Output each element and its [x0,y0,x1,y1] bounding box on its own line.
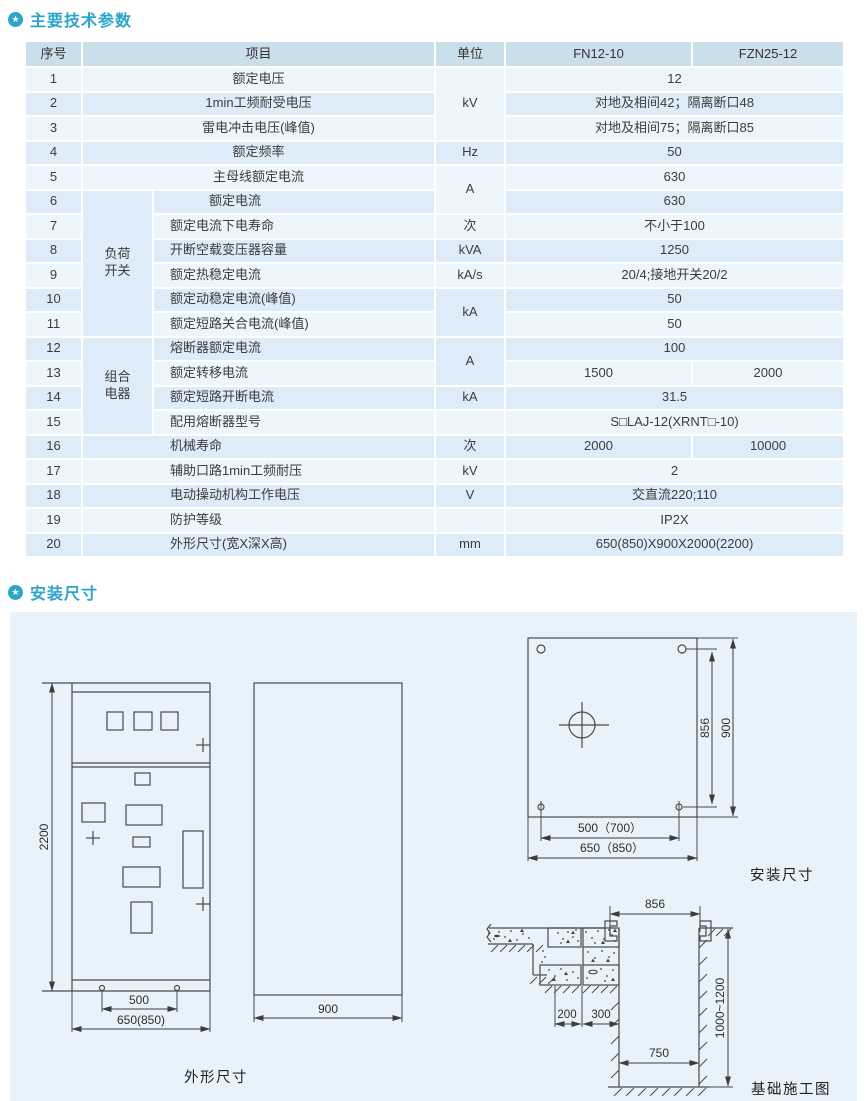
section-title-install: 安装尺寸 [30,580,98,604]
drawings-panel: 2200 500 650(850) 外形尺寸 900 856 900 500（7… [10,612,857,1101]
table-cell: 额定转移电流 [153,361,435,386]
table-cell: 17 [25,459,82,484]
section-title-params: 主要技术参数 [30,7,132,31]
table-cell: 650(850)X900X2000(2200) [505,533,844,558]
header-no: 序号 [25,41,82,67]
table-row: 3雷电冲击电压(峰值)对地及相间75；隔离断口85 [25,116,844,141]
table-cell: A [435,165,505,214]
dim-bottom-width: 750 [649,1046,669,1060]
table-cell: 9 [25,263,82,288]
table-cell: mm [435,533,505,558]
table-cell: 额定电压 [82,67,435,92]
table-cell: 额定频率 [82,141,435,166]
table-cell: 电动操动机构工作电压 [82,484,435,509]
table-cell: 19 [25,508,82,533]
table-cell: 额定动稳定电流(峰值) [153,288,435,313]
table-cell [435,508,505,533]
header-col2: FZN25-12 [692,41,844,67]
table-cell: kA/s [435,263,505,288]
header-item: 项目 [82,41,435,67]
table-cell: 配用熔断器型号 [153,410,435,435]
table-row: 4额定频率Hz50 [25,141,844,166]
table-cell: 31.5 [505,386,844,411]
table-cell: 熔断器额定电流 [153,337,435,362]
channel-steel-right [700,921,711,941]
table-cell: 1min工频耐受电压 [82,92,435,117]
table-cell: kA [435,288,505,337]
table-cell: 3 [25,116,82,141]
table-cell: 2000 [505,435,692,460]
table-cell: 16 [25,435,82,460]
table-row: 5主母线额定电流A630 [25,165,844,190]
table-row: 16机械寿命次200010000 [25,435,844,460]
table-cell: 50 [505,141,844,166]
table-cell: S□LAJ-12(XRNT□-10) [505,410,844,435]
table-cell: 组合 电器 [82,337,153,435]
parameters-table: 序号 项目 单位 FN12-10 FZN25-12 1额定电压kV1221min… [24,40,845,558]
table-cell: 630 [505,190,844,215]
table-cell: 开断空载变压器容量 [153,239,435,264]
dim-200: 200 [557,1009,576,1021]
table-cell: 对地及相间42；隔离断口48 [505,92,844,117]
table-row: 17辅助口路1min工频耐压kV2 [25,459,844,484]
table-row: 6负荷 开关额定电流630 [25,190,844,215]
table-cell: 防护等级 [82,508,435,533]
table-cell: 20 [25,533,82,558]
table-cell: 20/4;接地开关20/2 [505,263,844,288]
table-cell: 次 [435,214,505,239]
dim-width: 650(850) [117,1013,165,1027]
table-cell: 额定短路开断电流 [153,386,435,411]
dim-plan-hole-span: 500（700） [578,821,642,835]
params-table-body: 1额定电压kV1221min工频耐受电压对地及相间42；隔离断口483雷电冲击电… [25,67,844,557]
table-cell: 2 [505,459,844,484]
table-cell: 15 [25,410,82,435]
table-cell: 2000 [692,361,844,386]
table-cell: 7 [25,214,82,239]
table-cell: A [435,337,505,386]
table-header: 序号 项目 单位 FN12-10 FZN25-12 [25,41,844,67]
outline-label: 外形尺寸 [184,1069,248,1086]
section-header-params: ★ 主要技术参数 [8,7,132,31]
table-cell: kA [435,386,505,411]
dim-300: 300 [591,1009,610,1021]
table-row: 12组合 电器熔断器额定电流A100 [25,337,844,362]
dim-plan-width: 650（850） [580,841,644,855]
table-cell: kVA [435,239,505,264]
table-cell: 12 [25,337,82,362]
table-cell: 100 [505,337,844,362]
table-cell: 630 [505,165,844,190]
table-cell: 外形尺寸(宽X深X高) [82,533,435,558]
table-cell: kV [435,459,505,484]
table-cell: 交直流220;110 [505,484,844,509]
table-cell: 10000 [692,435,844,460]
texture-dots [488,929,617,982]
foundation-section: 856 200 300 750 1000~1200 基础施工图 [487,897,831,1098]
outline-front-view: 2200 500 650(850) 外形尺寸 [37,683,248,1086]
dim-foundation-depth: 1000~1200 [713,977,727,1038]
table-cell: 4 [25,141,82,166]
table-cell: 1 [25,67,82,92]
table-cell: 机械寿命 [82,435,435,460]
table-cell: 12 [505,67,844,92]
table-cell: 额定电流 [153,190,435,215]
table-row: 20外形尺寸(宽X深X高)mm650(850)X900X2000(2200) [25,533,844,558]
table-cell: 50 [505,312,844,337]
table-cell: Hz [435,141,505,166]
dim-depth: 900 [318,1002,338,1016]
header-unit: 单位 [435,41,505,67]
table-row: 1额定电压kV12 [25,67,844,92]
table-cell: 18 [25,484,82,509]
foundation-label: 基础施工图 [751,1081,831,1098]
section-header-install: ★ 安装尺寸 [8,580,98,604]
dim-hole-height: 856 [698,718,712,738]
table-cell: 1250 [505,239,844,264]
star-badge-icon: ★ [8,12,23,27]
table-cell [435,410,505,435]
table-cell: IP2X [505,508,844,533]
table-row: 21min工频耐受电压对地及相间42；隔离断口48 [25,92,844,117]
table-row: 18电动操动机构工作电压V交直流220;110 [25,484,844,509]
table-cell: 6 [25,190,82,215]
table-cell: kV [435,67,505,141]
table-cell: 10 [25,288,82,313]
table-cell: V [435,484,505,509]
table-cell: 2 [25,92,82,117]
table-row: 19防护等级IP2X [25,508,844,533]
table-cell: 50 [505,288,844,313]
table-cell: 主母线额定电流 [82,165,435,190]
table-cell: 额定热稳定电流 [153,263,435,288]
table-cell: 负荷 开关 [82,190,153,337]
table-cell: 8 [25,239,82,264]
hatch-lines [491,929,731,1096]
dim-hole-span: 500 [129,993,149,1007]
table-cell: 14 [25,386,82,411]
table-cell: 13 [25,361,82,386]
dim-height: 2200 [37,823,51,850]
header-col1: FN12-10 [505,41,692,67]
table-cell: 雷电冲击电压(峰值) [82,116,435,141]
table-cell: 额定短路关合电流(峰值) [153,312,435,337]
star-badge-icon: ★ [8,585,23,600]
table-cell: 次 [435,435,505,460]
table-cell: 1500 [505,361,692,386]
dim-foundation-top: 856 [645,897,665,911]
table-cell: 不小于100 [505,214,844,239]
table-cell: 11 [25,312,82,337]
installation-plan: 856 900 500（700） 650（850） 安装尺寸 [528,638,814,884]
table-cell: 额定电流下电寿命 [153,214,435,239]
outline-side-view: 900 [254,683,402,1022]
dim-plan-depth: 900 [719,718,733,738]
table-cell: 5 [25,165,82,190]
table-cell: 辅助口路1min工频耐压 [82,459,435,484]
plan-label: 安装尺寸 [750,867,814,884]
table-cell: 对地及相间75；隔离断口85 [505,116,844,141]
drawings-svg: 2200 500 650(850) 外形尺寸 900 856 900 500（7… [10,612,857,1101]
